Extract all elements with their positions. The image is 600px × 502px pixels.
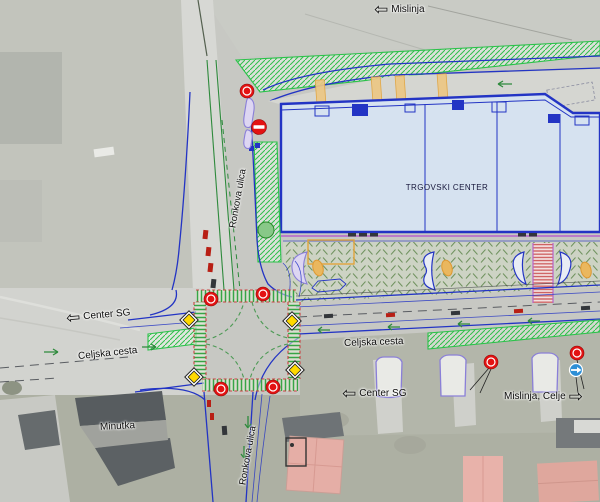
road-label-center-sg-bottom: ⇦ Center SG	[342, 388, 407, 399]
traffic-plan-map: ⇦ Mislinja ⇦ Center SG Celjska cesta Cel…	[0, 0, 600, 502]
road-label-mislinja-celje: Mislinja, Celje ⇨	[504, 391, 583, 402]
traffic-signal-icon	[204, 292, 218, 306]
road-label-celjska-east: Celjska cesta	[344, 336, 404, 349]
road-label-mislinja-top: ⇦ Mislinja	[374, 4, 425, 15]
label-text: Minutka	[100, 420, 136, 433]
building-label-trgovski-center: TRGOVSKI CENTER	[392, 183, 502, 192]
no-entry-sign-icon	[252, 120, 267, 135]
mandatory-direction-sign-icon	[570, 364, 583, 377]
traffic-signal-icon	[214, 382, 228, 396]
direction-arrow-right-icon: ⇨	[569, 392, 583, 402]
traffic-signal-icon	[256, 287, 270, 301]
parking-crosswalk	[533, 243, 553, 303]
tree-symbol	[258, 222, 274, 238]
traffic-signal-icon	[266, 380, 280, 394]
shopping-center-building	[281, 94, 600, 236]
plan-canvas	[0, 0, 600, 502]
label-text: Center SG	[359, 388, 406, 399]
traffic-signal-icon	[240, 84, 254, 98]
driveway-entrance	[440, 355, 466, 396]
crosswalk-west	[194, 302, 206, 379]
label-text: Celjska cesta	[344, 336, 404, 349]
label-text: Mislinja, Celje	[504, 391, 566, 402]
direction-arrow-left-icon: ⇦	[342, 389, 356, 399]
traffic-signal-icon	[570, 346, 584, 360]
direction-arrow-left-icon: ⇦	[66, 312, 81, 323]
building-label-minutka: Minutka	[100, 420, 136, 433]
direction-arrow-left-icon: ⇦	[374, 5, 388, 15]
label-text: Mislinja	[391, 4, 424, 15]
traffic-signal-icon	[484, 355, 498, 369]
driveway-entrance	[532, 353, 558, 392]
